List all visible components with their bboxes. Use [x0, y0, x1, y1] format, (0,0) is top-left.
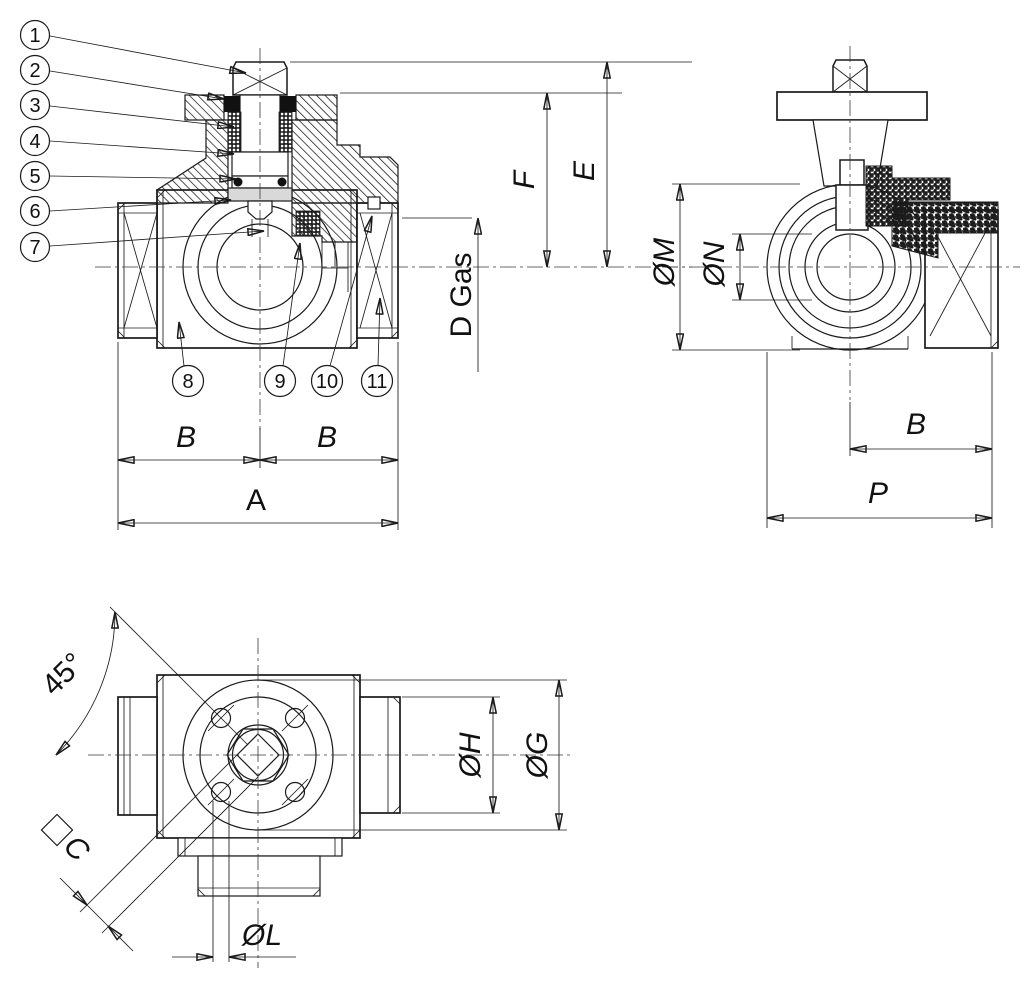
callout-number-5: 5 [29, 166, 40, 188]
dim-label-c: C [57, 829, 96, 868]
o-ring-right [278, 178, 287, 187]
dim-label-l: ØL [241, 919, 282, 952]
packing-right [279, 112, 292, 152]
drawing-canvas: B B A F E D Gas 1 2 3 [0, 0, 1024, 986]
bonnet-left-section [157, 120, 228, 203]
callout-number-11: 11 [367, 371, 388, 393]
side-section-view: ØM ØN B P [648, 46, 1020, 528]
dim-label-p: P [868, 477, 888, 510]
callout-number-9: 9 [274, 371, 285, 393]
dim-label-b-left: B [176, 421, 196, 454]
stem-seal-left [224, 96, 240, 112]
front-section-view: B B A F E D Gas 1 2 3 [21, 21, 693, 531]
bonnet-flange-right-section [296, 95, 337, 120]
dim-label-b-side: B [906, 408, 926, 441]
dim-label-a: A [246, 484, 266, 517]
top-left-port [118, 697, 157, 815]
stem-seal-right [280, 96, 296, 112]
dim-label-45: 45° [36, 647, 91, 702]
top-view: 45° C ØL ØH ØG [36, 607, 572, 968]
bonnet-right-section [292, 120, 398, 203]
right-port-thread [357, 203, 398, 338]
callout-number-2: 2 [29, 60, 40, 82]
bonnet-flange-left-section [185, 95, 224, 120]
callout-number-1: 1 [29, 25, 40, 47]
callout-number-4: 4 [29, 131, 40, 153]
packing-left [228, 112, 241, 152]
seat-seal-section [296, 211, 320, 235]
callout-number-6: 6 [29, 201, 40, 223]
dim-label-d-gas: D Gas [445, 252, 478, 337]
callout-number-8: 8 [182, 371, 193, 393]
dim-label-e: E [568, 160, 601, 181]
dim-label-g: ØG [521, 732, 554, 780]
dim-label-m: ØM [648, 238, 681, 287]
dim-label-b-right: B [317, 421, 337, 454]
dim-label-n: ØN [698, 241, 731, 287]
seat-retainer [368, 197, 380, 209]
callout-number-10: 10 [316, 371, 338, 393]
top-bottom-port [178, 838, 342, 896]
handle-plate [777, 92, 927, 120]
dim-label-h: ØH [454, 732, 487, 778]
valve-technical-drawing: B B A F E D Gas 1 2 3 [0, 0, 1024, 986]
callout-number-3: 3 [29, 95, 40, 117]
dim-label-f: F [508, 169, 541, 189]
stem-side [840, 160, 864, 185]
left-port-thread [118, 203, 157, 338]
callout-number-7: 7 [29, 237, 40, 259]
